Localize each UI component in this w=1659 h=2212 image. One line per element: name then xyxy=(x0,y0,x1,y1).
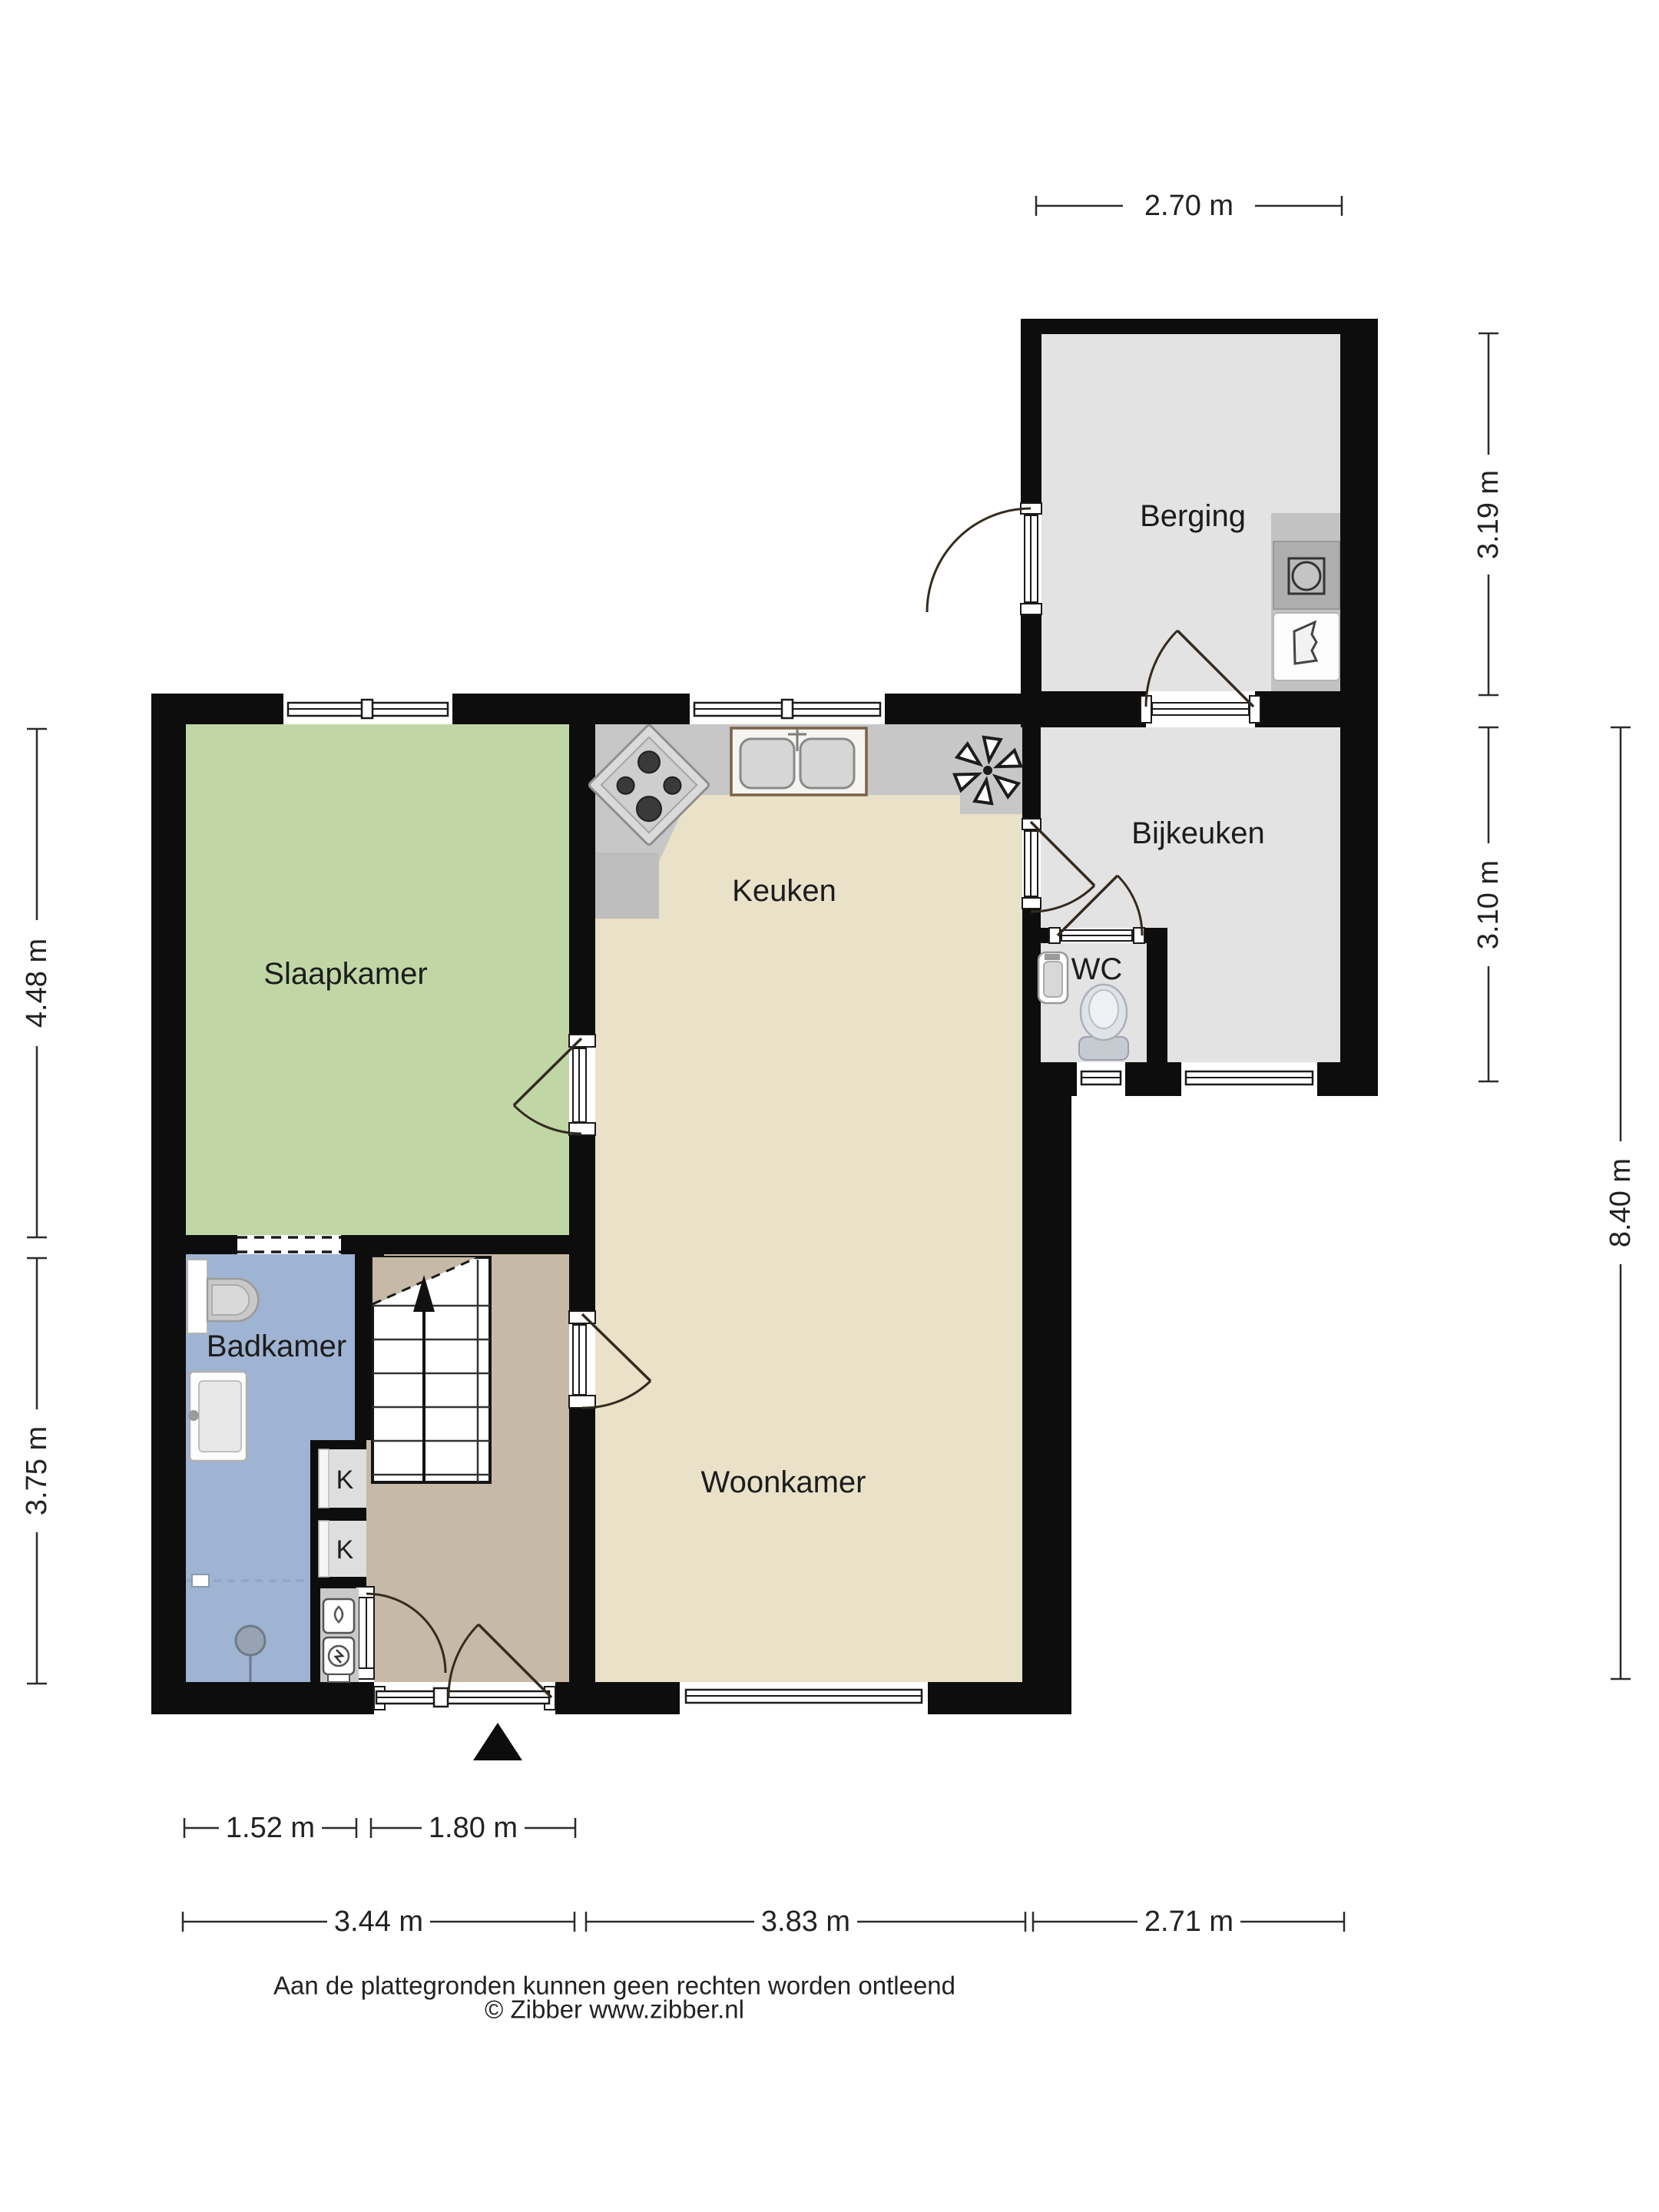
dimension-house-height-label: 8.40 m xyxy=(1604,1158,1637,1247)
kitchen-sink-icon xyxy=(731,728,866,795)
room-keuken-label: Keuken xyxy=(732,874,836,908)
window-slaapkamer xyxy=(288,700,448,718)
room-woonkamer-label: Woonkamer xyxy=(701,1465,866,1499)
meter-cabinet xyxy=(320,1588,359,1682)
dimension-badkamer-height-label: 3.75 m xyxy=(21,1426,53,1515)
hand-basin-icon-wc xyxy=(1038,952,1068,1003)
dimension-badkamer-width-label: 1.52 m xyxy=(226,1812,315,1844)
kitchen-cabinet xyxy=(595,853,659,919)
room-keuken-woonkamer-floor xyxy=(595,724,1022,1682)
dimension-top-width-label: 2.70 m xyxy=(1144,190,1233,222)
room-wc-label: WC xyxy=(1071,952,1123,986)
washbasin-icon xyxy=(188,1372,247,1461)
dimension-bottom-left-width-label: 3.44 m xyxy=(334,1906,423,1938)
dimension-bottom-middle-width-label: 3.83 m xyxy=(761,1906,850,1938)
dimension-berging-height-label: 3.19 m xyxy=(1472,470,1505,559)
floorplan-page: K K Berging Bijkeuken WC Keuken Sla xyxy=(0,0,1659,2212)
washing-machine-icon xyxy=(1273,541,1339,609)
closet-2: K xyxy=(319,1521,366,1577)
closet-2-label: K xyxy=(336,1535,354,1565)
laundry-sink-icon xyxy=(1273,613,1339,680)
closet-1-label: K xyxy=(336,1465,354,1495)
dimension-bijkeuken-height-label: 3.10 m xyxy=(1472,860,1505,949)
room-bijkeuken-label: Bijkeuken xyxy=(1131,816,1264,850)
window-bijkeuken xyxy=(1186,1071,1313,1084)
floorplan-canvas: K K Berging Bijkeuken WC Keuken Sla xyxy=(0,0,1659,2212)
toilet-icon-wc xyxy=(1079,985,1128,1060)
footer-copyright: © Zibber www.zibber.nl xyxy=(485,1995,744,2024)
dimension-slaapkamer-height-label: 4.48 m xyxy=(21,939,53,1028)
window-keuken xyxy=(694,700,880,718)
dimension-bottom-right-width-label: 2.71 m xyxy=(1144,1906,1233,1938)
room-badkamer-label: Badkamer xyxy=(207,1330,346,1363)
room-slaapkamer-label: Slaapkamer xyxy=(263,957,427,991)
dimension-hal-width-label: 1.80 m xyxy=(429,1812,518,1844)
window-woonkamer xyxy=(686,1690,922,1703)
room-berging-label: Berging xyxy=(1140,499,1246,533)
closet-1: K xyxy=(319,1449,366,1508)
stairs xyxy=(373,1257,490,1482)
window-wc xyxy=(1081,1071,1121,1084)
